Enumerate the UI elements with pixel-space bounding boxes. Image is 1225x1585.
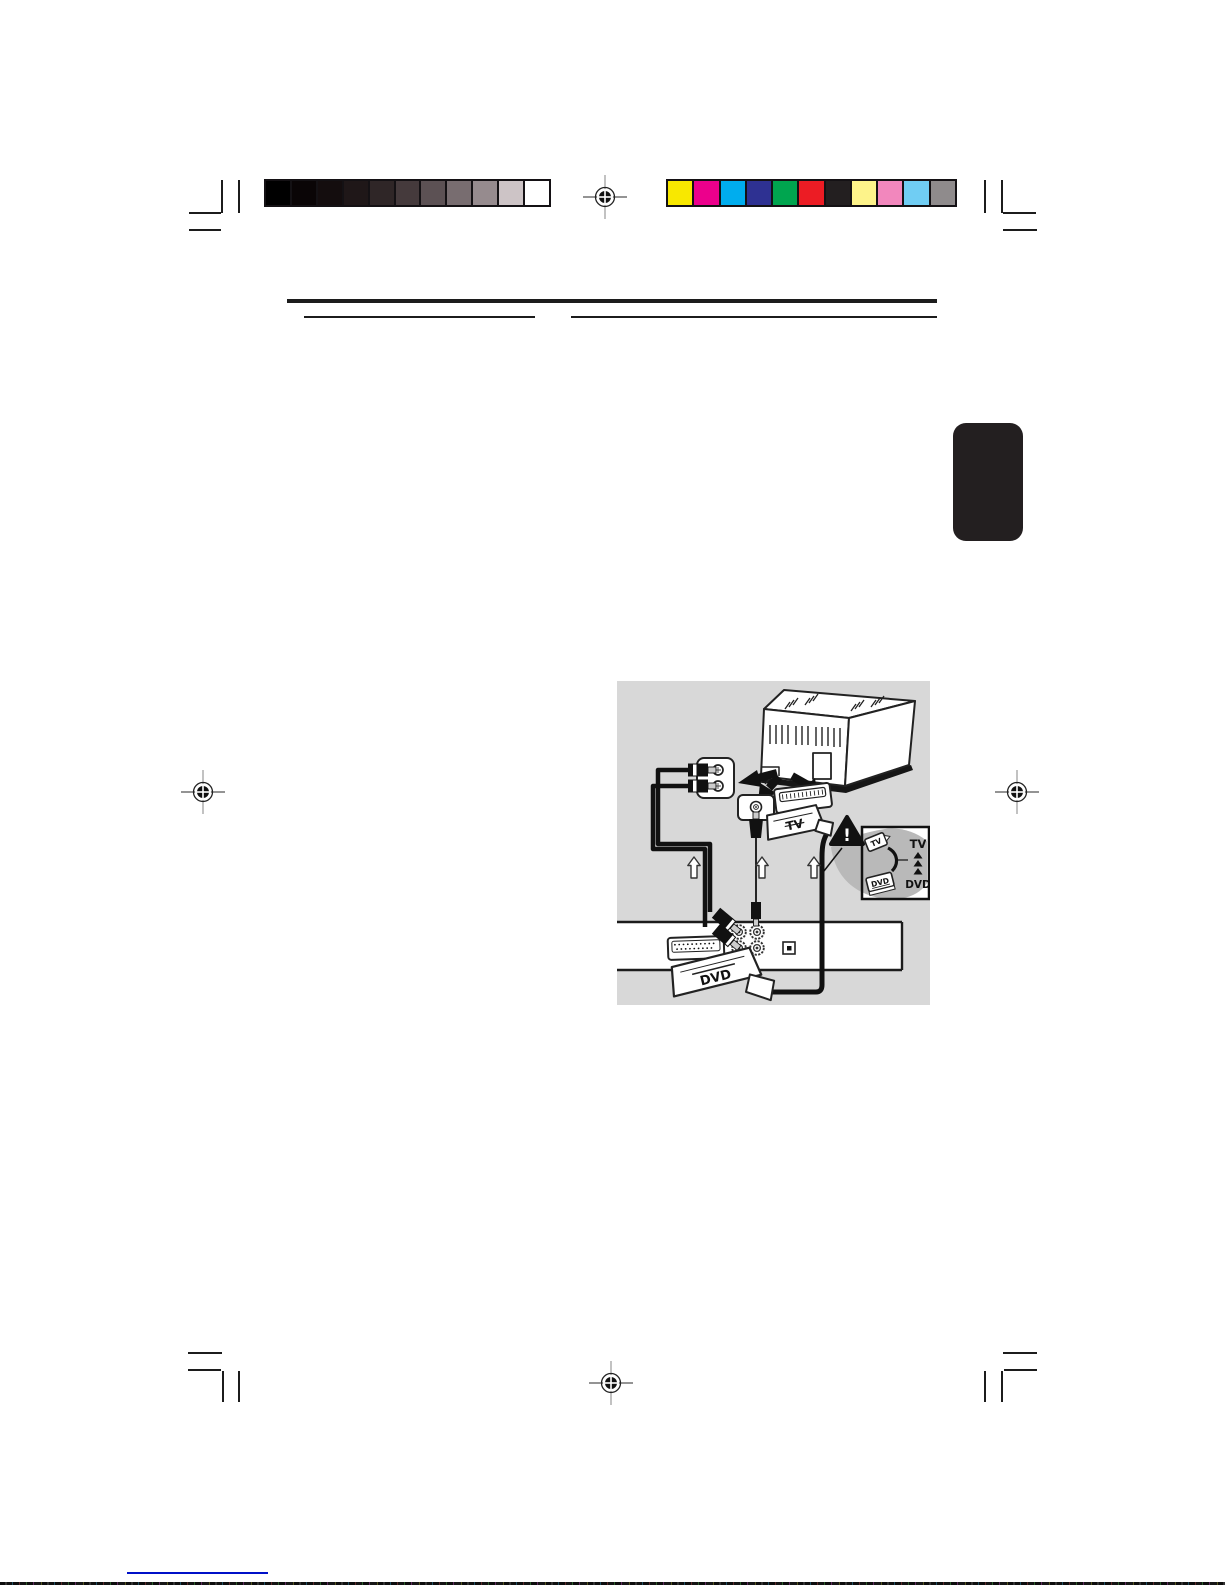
crop-mark — [1004, 1369, 1037, 1371]
crop-mark — [1003, 1352, 1037, 1354]
registration-mark-bottom — [589, 1361, 633, 1405]
color-swatch — [721, 181, 745, 205]
grayscale-calibration-bar — [264, 179, 551, 207]
color-swatch — [878, 181, 902, 205]
digital-out-jack — [783, 942, 795, 954]
color-swatch — [694, 181, 718, 205]
color-swatch — [931, 181, 955, 205]
color-swatch — [292, 181, 316, 205]
color-swatch — [852, 181, 876, 205]
color-swatch — [421, 181, 445, 205]
chapter-tab — [953, 423, 1023, 541]
color-swatch — [499, 181, 523, 205]
registration-mark-top — [583, 175, 627, 219]
crop-mark — [984, 180, 986, 213]
crop-mark — [1001, 1371, 1003, 1402]
color-swatch — [773, 181, 797, 205]
color-swatch — [525, 181, 549, 205]
color-swatch — [668, 181, 692, 205]
crop-mark — [984, 1371, 986, 1402]
crop-mark — [222, 1371, 224, 1402]
warning-exclamation: ! — [843, 826, 851, 846]
crop-mark — [1003, 229, 1037, 231]
crop-mark — [188, 1352, 222, 1354]
inset-tv-text: TV — [910, 837, 927, 851]
inset-dvd-text: DVD — [905, 879, 930, 891]
registration-mark-right — [995, 770, 1039, 814]
crop-mark — [1003, 212, 1036, 214]
color-swatch — [266, 181, 290, 205]
color-calibration-bar — [666, 179, 957, 207]
header-rule-thick — [287, 299, 937, 303]
crop-mark — [189, 229, 221, 231]
crop-mark — [1001, 180, 1003, 213]
color-swatch — [344, 181, 368, 205]
color-swatch — [799, 181, 823, 205]
color-swatch — [473, 181, 497, 205]
scanned-manual-page: TV — [0, 0, 1225, 1585]
header-rule-right-column — [571, 316, 937, 318]
color-swatch — [370, 181, 394, 205]
crop-mark — [221, 180, 223, 213]
crop-mark — [238, 1371, 240, 1402]
color-swatch — [447, 181, 471, 205]
registration-mark-left — [181, 770, 225, 814]
color-swatch — [396, 181, 420, 205]
crop-mark — [238, 180, 240, 213]
tv-connection-diagram: TV — [617, 681, 930, 1005]
crop-mark — [189, 212, 221, 214]
color-swatch — [826, 181, 850, 205]
color-swatch — [318, 181, 342, 205]
crop-mark — [188, 1369, 221, 1371]
color-swatch — [904, 181, 928, 205]
header-rule-left-column — [304, 316, 535, 318]
color-swatch — [747, 181, 771, 205]
footer-blue-line — [127, 1572, 268, 1574]
